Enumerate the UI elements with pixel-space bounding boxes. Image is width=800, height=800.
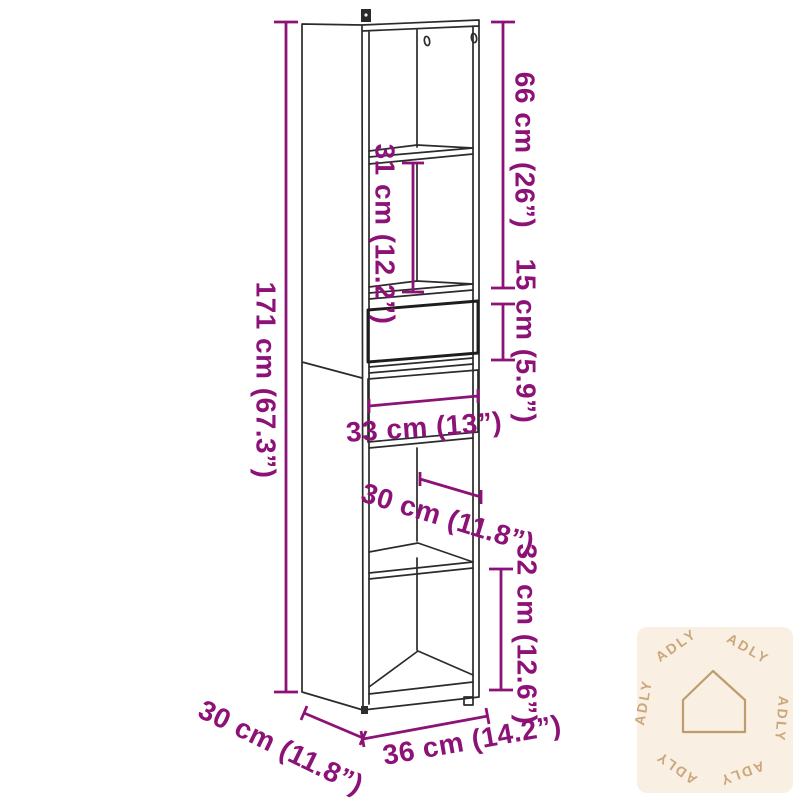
cabinet-foot-left <box>361 706 368 714</box>
wall-bracket-pin <box>364 13 367 16</box>
dim-lower-compartment-height: 32 cm (12.6”) <box>489 544 543 725</box>
diagram-canvas: 171 cm (67.3”) 66 cm (26”) 31 cm (12.2”)… <box>0 0 800 800</box>
brand-watermark: ADLY ADLY ADLY ADLY ADLY ADLY <box>631 625 793 793</box>
dim-inner-depth-label: 30 cm (11.8”) <box>358 477 539 559</box>
top-hole-left <box>424 36 431 46</box>
dim-total-height-label: 171 cm (67.3”) <box>251 282 282 479</box>
dim-middle-shelf-height: 31 cm (12.2”) <box>370 144 425 325</box>
dim-total-height: 171 cm (67.3”) <box>251 22 299 692</box>
dim-upper-section-label: 66 cm (26”) <box>510 72 541 228</box>
dim-upper-section-height: 66 cm (26”) <box>491 22 541 288</box>
dim-lower-compartment-label: 32 cm (12.6”) <box>512 544 543 725</box>
dim-drawer-height: 15 cm (5.9”) <box>491 259 542 424</box>
dim-outer-depth-label: 30 cm (11.8”) <box>194 694 369 800</box>
dim-middle-shelf-line <box>402 163 424 292</box>
dim-lower-compartment-line <box>489 569 513 690</box>
dim-outer-depth: 30 cm (11.8”) <box>194 694 369 800</box>
dim-middle-shelf-label: 31 cm (12.2”) <box>370 144 401 325</box>
cabinet-drawing <box>302 9 479 714</box>
dim-drawer-height-label: 15 cm (5.9”) <box>511 259 542 424</box>
dim-inner-depth: 30 cm (11.8”) <box>358 472 539 559</box>
dim-outer-width: 36 cm (14.2”) <box>361 708 564 771</box>
furniture-dimension-diagram: 171 cm (67.3”) 66 cm (26”) 31 cm (12.2”)… <box>0 0 800 800</box>
dim-outer-depth-line <box>301 706 366 745</box>
top-hole-right <box>471 33 478 43</box>
